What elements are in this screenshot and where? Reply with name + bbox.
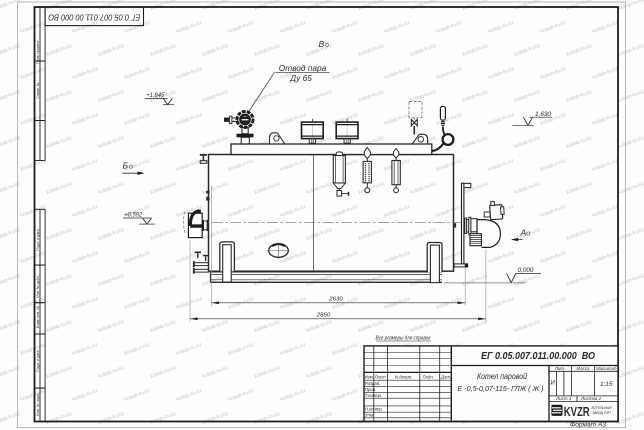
svg-text:Б: Б bbox=[123, 161, 129, 171]
svg-text:KVZR: KVZR bbox=[564, 405, 590, 419]
svg-text:Формат А3: Формат А3 bbox=[570, 422, 606, 429]
svg-text:0,000: 0,000 bbox=[518, 267, 534, 274]
svg-text:Подп. и дата: Подп. и дата bbox=[36, 350, 40, 371]
svg-text:Перв. примен.: Перв. примен. bbox=[36, 40, 40, 64]
svg-text:Котел паровой: Котел паровой bbox=[477, 372, 527, 381]
svg-text:И: И bbox=[551, 381, 556, 387]
svg-text:Подп.: Подп. bbox=[423, 374, 434, 379]
svg-text:В: В bbox=[319, 39, 325, 49]
svg-text:Е -0,5-0,07-115- ГЛЖ ( Ж ): Е -0,5-0,07-115- ГЛЖ ( Ж ) bbox=[458, 384, 545, 393]
svg-text:ЕГ 0.05.007.011.00.000 ВО: ЕГ 0.05.007.011.00.000 ВО bbox=[481, 351, 595, 362]
svg-text:Инв. № дубл.: Инв. № дубл. bbox=[36, 275, 40, 297]
svg-text:Подп. и дата: Подп. и дата bbox=[36, 229, 40, 250]
svg-text:Ду 65: Ду 65 bbox=[289, 73, 312, 83]
svg-text:КОТЕЛЬНЫЙ: КОТЕЛЬНЫЙ bbox=[591, 406, 612, 410]
svg-text:Взам. инв. №: Взам. инв. № bbox=[36, 306, 40, 328]
svg-text:А: А bbox=[520, 228, 527, 238]
svg-text:2850: 2850 bbox=[316, 313, 332, 319]
svg-text:Т.контр.: Т.контр. bbox=[365, 393, 382, 398]
svg-text:Дата: Дата bbox=[440, 374, 453, 379]
svg-text:Утв.: Утв. bbox=[365, 413, 375, 418]
svg-text:Лист: Лист bbox=[374, 374, 386, 379]
svg-text:Разраб.: Разраб. bbox=[365, 381, 381, 386]
svg-text:Инв. № подл.: Инв. № подл. bbox=[36, 393, 40, 415]
svg-text:+0,592: +0,592 bbox=[124, 212, 142, 219]
svg-text:Пров.: Пров. bbox=[365, 387, 376, 392]
svg-text:2630: 2630 bbox=[328, 297, 344, 303]
svg-text:1,630: 1,630 bbox=[535, 111, 551, 118]
svg-text:ЕГ 0.05.007.011.00.000 ВО: ЕГ 0.05.007.011.00.000 ВО bbox=[48, 12, 140, 22]
svg-text:Н.контр.: Н.контр. bbox=[365, 407, 383, 412]
svg-text:1:15: 1:15 bbox=[600, 381, 613, 388]
svg-text:Отвод пара: Отвод пара bbox=[279, 63, 327, 73]
svg-text:ЗАВОД РЭП: ЗАВОД РЭП bbox=[592, 411, 611, 415]
svg-text:Все размеры для справок: Все размеры для справок bbox=[376, 336, 431, 342]
svg-text:Лист 1: Лист 1 bbox=[555, 396, 572, 401]
svg-text:Справ. №: Справ. № bbox=[36, 82, 40, 98]
svg-text:+1,845: +1,845 bbox=[146, 92, 164, 99]
svg-text:Масштаб: Масштаб bbox=[596, 366, 617, 371]
svg-text:Лит.: Лит. bbox=[554, 366, 565, 371]
svg-text:Изм.: Изм. bbox=[365, 374, 374, 379]
svg-text:Листов 2: Листов 2 bbox=[580, 396, 602, 401]
svg-text:Масса: Масса bbox=[577, 366, 591, 371]
svg-text:N докум.: N докум. bbox=[395, 374, 412, 379]
